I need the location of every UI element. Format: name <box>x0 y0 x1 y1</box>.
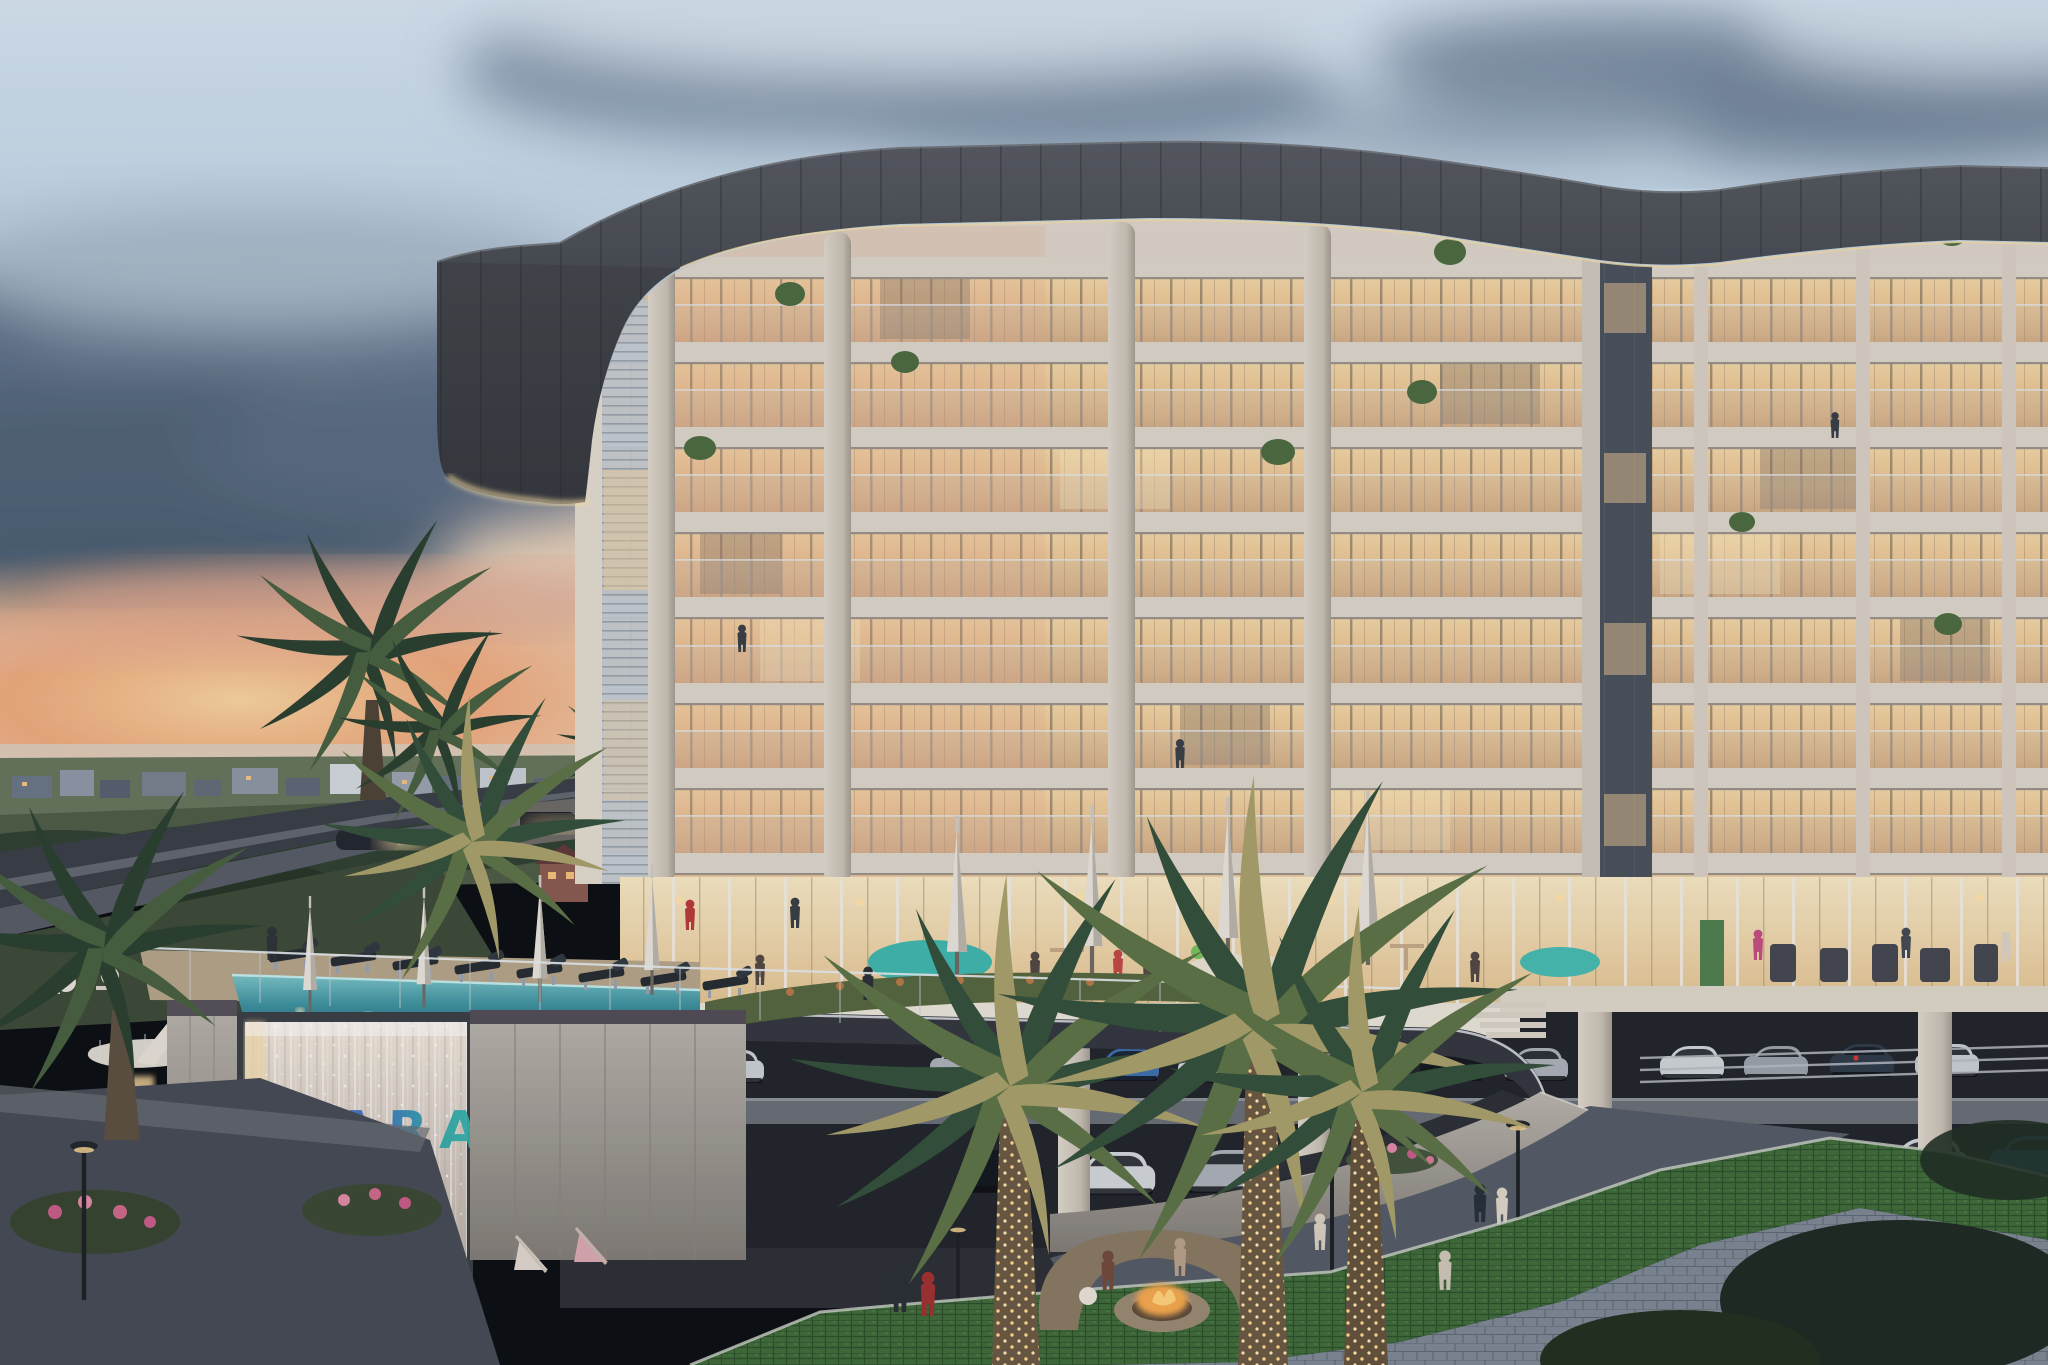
vignette <box>0 0 2048 1365</box>
rendered-photo: TIARA <box>0 0 2048 1365</box>
scene-canvas: TIARA <box>0 0 2048 1365</box>
